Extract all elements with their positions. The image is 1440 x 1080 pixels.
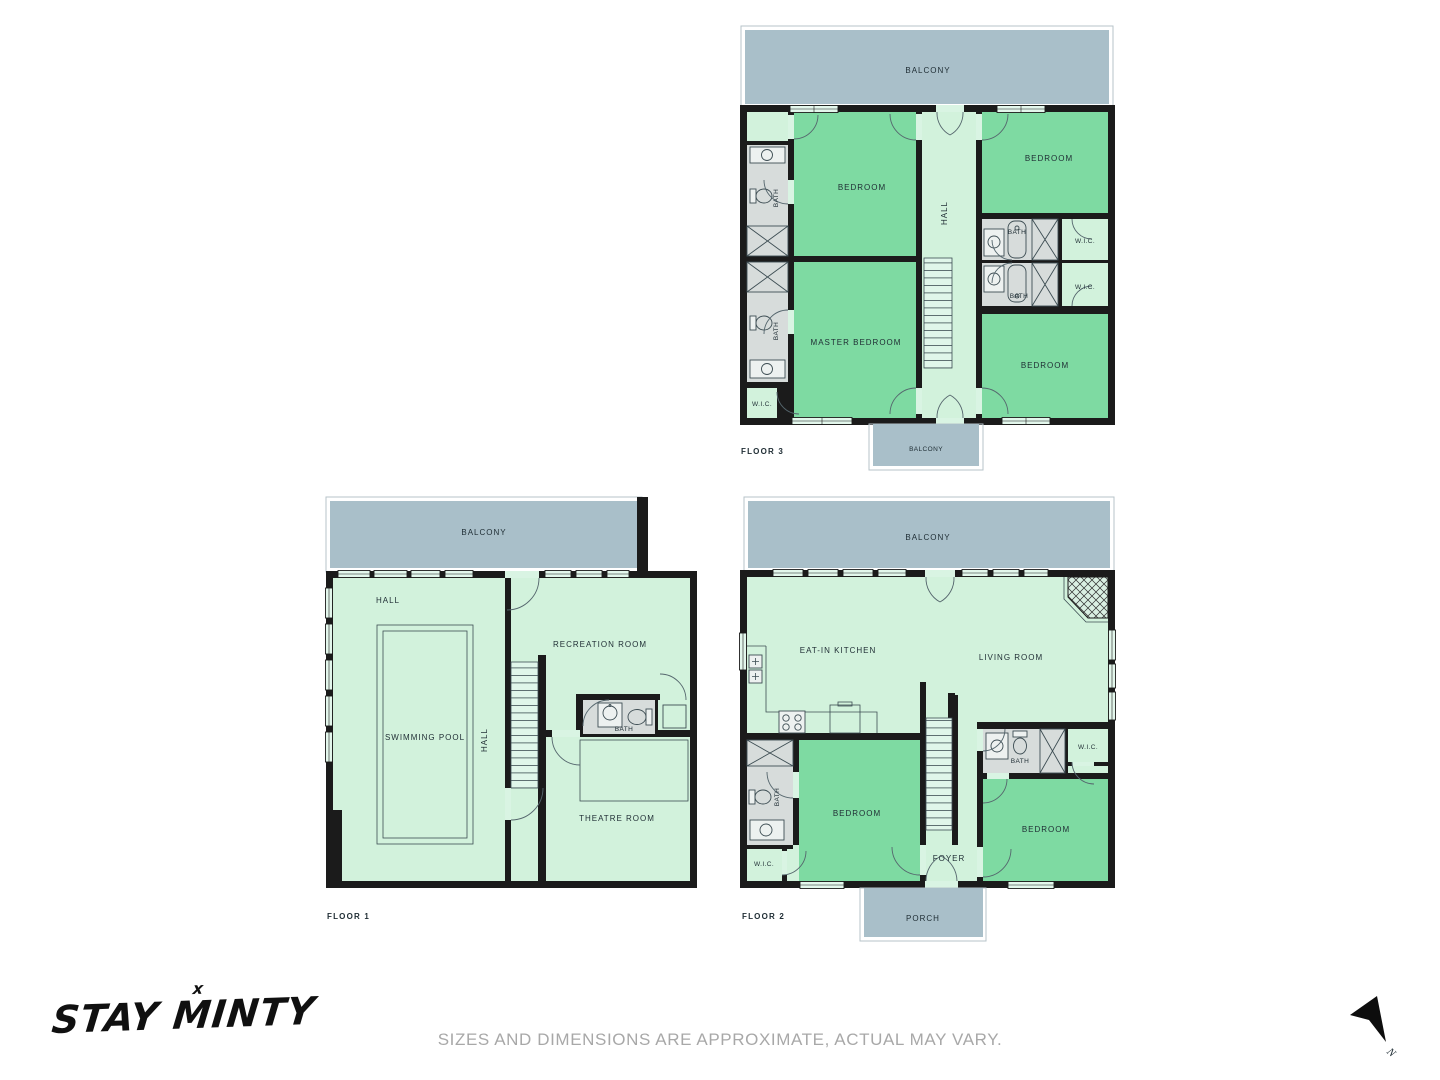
- room-label-bedroom-left: BEDROOM: [833, 809, 881, 818]
- room-label-hall: HALL: [940, 201, 949, 225]
- room-label-bath-right: BATH: [1011, 758, 1029, 765]
- floorplan-page: BALCONY: [0, 0, 1440, 1080]
- stairs: [924, 258, 952, 368]
- room-label-wic-left: W.I.C.: [754, 861, 774, 868]
- room-label-wic-r1: W.I.C.: [1075, 238, 1095, 245]
- room-label-balcony: BALCONY: [905, 533, 950, 542]
- logo-x-mark: x: [192, 979, 205, 998]
- floor1-plan: BALCONY: [326, 497, 698, 921]
- disclaimer-text: SIZES AND DIMENSIONS ARE APPROXIMATE, AC…: [0, 1030, 1440, 1050]
- room-label-bedroom-tr: BEDROOM: [1025, 154, 1073, 163]
- stove-icon: [779, 711, 805, 733]
- stairs: [511, 662, 538, 788]
- room-label-bath-l1: BATH: [773, 189, 780, 207]
- room-label-recreation: RECREATION ROOM: [553, 640, 647, 649]
- room-label-balcony: BALCONY: [461, 528, 506, 537]
- north-arrow-icon: N: [1350, 996, 1398, 1060]
- room-label-bath-r1: BATH: [1008, 229, 1026, 236]
- room-label-theatre: THEATRE ROOM: [579, 814, 655, 823]
- room-label-wic-l: W.I.C.: [752, 401, 772, 408]
- room-label-bath-left: BATH: [774, 788, 781, 806]
- room-label-foyer: FOYER: [933, 854, 966, 863]
- stairs: [926, 718, 952, 830]
- room-label-balcony: BALCONY: [905, 66, 950, 75]
- room-label-bedroom-br: BEDROOM: [1021, 361, 1069, 370]
- room-label-balcony-bottom: BALCONY: [909, 446, 943, 453]
- room-label-bath: BATH: [615, 726, 633, 733]
- room-label-bath-r2: BATH: [1010, 293, 1028, 300]
- room-porch: [864, 888, 983, 937]
- room-label-living: LIVING ROOM: [979, 653, 1043, 662]
- room-label-wic-r2: W.I.C.: [1075, 284, 1095, 291]
- room-label-wic-right: W.I.C.: [1078, 744, 1098, 751]
- room-label-porch: PORCH: [906, 914, 940, 923]
- room-label-hall-vertical: HALL: [480, 728, 489, 752]
- room-label-kitchen: EAT-IN KITCHEN: [800, 646, 877, 655]
- floor-label-2: FLOOR 2: [742, 912, 785, 921]
- floor2-plan: BALCONY: [740, 497, 1116, 941]
- room-label-pool: SWIMMING POOL: [385, 733, 465, 742]
- room-label-bedroom-right: BEDROOM: [1022, 825, 1070, 834]
- floor-label-3: FLOOR 3: [741, 447, 784, 456]
- floorplan-canvas: BALCONY: [0, 0, 1440, 1080]
- room-label-bath-l2: BATH: [773, 322, 780, 340]
- room-label-master: MASTER BEDROOM: [811, 338, 902, 347]
- room-label-bedroom-tl: BEDROOM: [838, 183, 886, 192]
- room-label-hall: HALL: [376, 596, 400, 605]
- sink-icon: [598, 703, 622, 727]
- floor-label-1: FLOOR 1: [327, 912, 370, 921]
- room-balcony-bottom: [873, 424, 979, 466]
- floor3-plan: BALCONY: [740, 26, 1115, 470]
